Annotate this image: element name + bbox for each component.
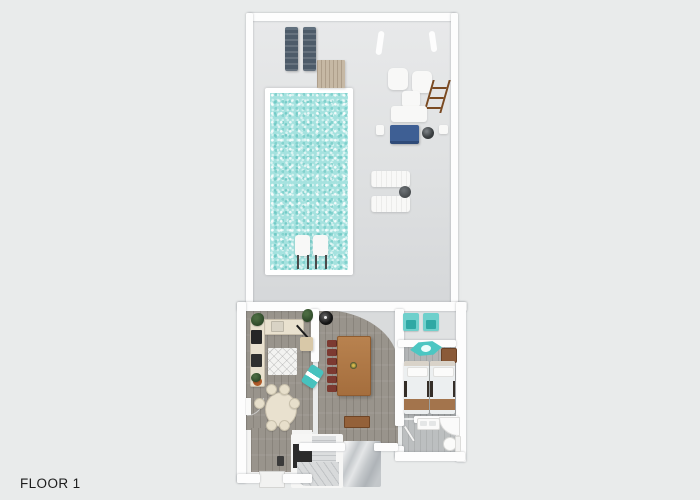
kayak-cockpit xyxy=(421,345,432,353)
black-round-grill xyxy=(319,311,333,325)
bed-post xyxy=(427,381,430,397)
nook-chair xyxy=(289,398,300,409)
front-door-step xyxy=(259,471,285,488)
dining-chair xyxy=(327,385,337,392)
nook-chair xyxy=(266,420,277,431)
sun-lounger-slate xyxy=(303,27,316,71)
chair-seat xyxy=(406,320,416,329)
blanket xyxy=(404,399,429,410)
dining-chair xyxy=(327,340,337,347)
chair-seat xyxy=(426,320,436,329)
door-leaf-white xyxy=(246,398,251,415)
console-table xyxy=(344,416,370,428)
in-pool-lounger-legs xyxy=(315,255,317,269)
planter xyxy=(376,125,384,135)
long-dining-table xyxy=(337,336,371,396)
table-centerpiece xyxy=(350,362,357,369)
in-pool-lounger xyxy=(295,235,310,256)
ladder-rung xyxy=(429,97,444,99)
single-bed xyxy=(404,361,429,414)
ladder-rung xyxy=(432,87,447,89)
floor-plan-scene: FLOOR 1 xyxy=(0,0,700,500)
navy-daybed xyxy=(390,125,419,144)
outdoor-bench xyxy=(391,106,427,122)
pillow xyxy=(433,367,454,377)
wood-deck-mat xyxy=(317,60,345,88)
dining-chair xyxy=(327,376,337,383)
shoe-rack xyxy=(277,456,284,466)
pool-lounger-white xyxy=(371,171,410,187)
sun-lounger-slate xyxy=(285,27,298,71)
pillow xyxy=(407,367,428,377)
potted-plant xyxy=(251,313,264,326)
headboard xyxy=(404,361,429,366)
nook-chair xyxy=(254,398,265,409)
bed-post xyxy=(453,381,456,397)
yard-wall-right xyxy=(451,13,458,310)
single-bed xyxy=(430,361,455,414)
toilet-tank xyxy=(455,436,461,452)
left-room-bottom-wall-b xyxy=(283,474,312,483)
cube-chair xyxy=(388,68,408,90)
grill-knob xyxy=(324,316,327,319)
side-table-white xyxy=(402,91,420,107)
bathroom-bottom-wall xyxy=(395,452,465,461)
nook-chair xyxy=(266,384,277,395)
headboard xyxy=(430,361,455,366)
planter xyxy=(439,125,448,134)
dining-chair xyxy=(327,358,337,365)
kitchen-sink xyxy=(271,321,284,332)
hall-bottom-wall-left xyxy=(299,443,345,451)
sink xyxy=(429,421,436,426)
hall-bottom-wall-right xyxy=(374,443,398,451)
round-side-table xyxy=(399,186,411,198)
nook-chair xyxy=(279,420,290,431)
tan-side-table xyxy=(300,337,313,351)
teal-folding-chair xyxy=(403,313,419,331)
kitchen-rug xyxy=(268,348,297,375)
round-grill xyxy=(422,127,434,139)
in-pool-lounger-legs xyxy=(307,255,309,269)
potted-plant xyxy=(302,309,313,322)
teal-folding-chair xyxy=(423,313,439,331)
oven xyxy=(251,354,262,367)
bed-post xyxy=(430,381,433,397)
toilet xyxy=(443,436,459,450)
plant-orange-pot xyxy=(251,373,263,386)
floor-label: FLOOR 1 xyxy=(20,476,81,491)
pool-lounger-white xyxy=(371,196,410,212)
dining-chair xyxy=(327,367,337,374)
in-pool-lounger xyxy=(313,235,328,256)
dining-chair xyxy=(327,349,337,356)
house-wall-left xyxy=(237,302,246,483)
double-sink-vanity xyxy=(417,418,440,430)
yard-wall-left xyxy=(246,13,253,310)
in-pool-lounger-legs xyxy=(325,255,327,269)
leaves xyxy=(251,373,261,382)
corridor-floor xyxy=(251,428,292,472)
nook-chair xyxy=(279,384,290,395)
in-pool-lounger-legs xyxy=(297,255,299,269)
left-room-bottom-wall-a xyxy=(237,474,260,483)
house-wall-top xyxy=(237,302,467,311)
fridge xyxy=(251,330,262,344)
ladder-rung xyxy=(426,107,441,109)
yard-wall-top xyxy=(248,13,456,21)
sink xyxy=(420,421,427,426)
bed-post xyxy=(404,381,407,397)
blanket xyxy=(430,399,455,410)
